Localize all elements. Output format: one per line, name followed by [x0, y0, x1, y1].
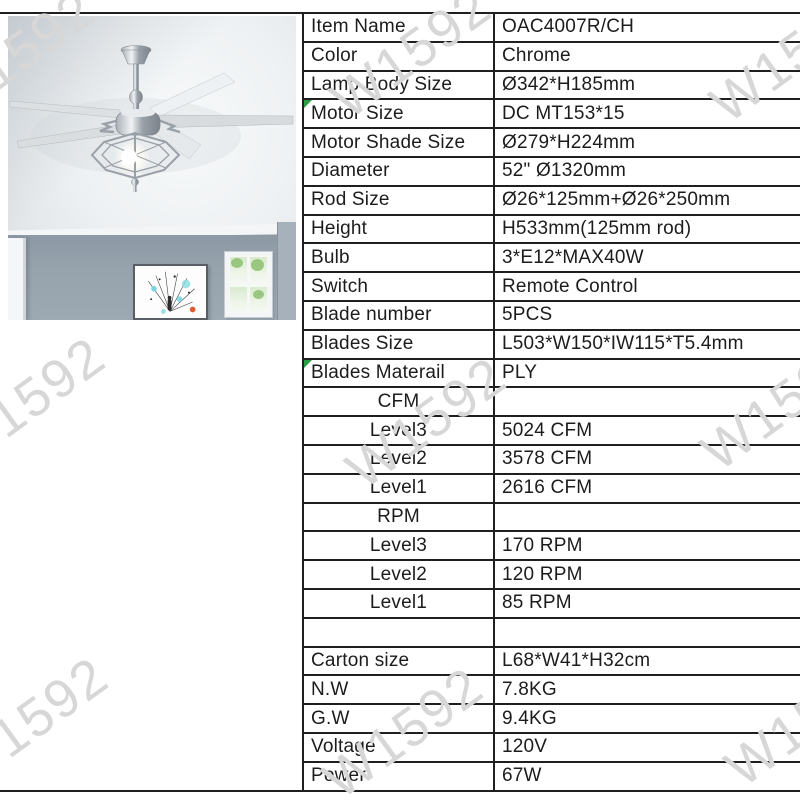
spec-label-text: Motor Size [311, 103, 404, 125]
spec-value: 9.4KG [495, 705, 800, 732]
spec-label: Level2 [302, 561, 495, 588]
table-row: RPM [302, 504, 800, 533]
spec-value: Chrome [495, 43, 800, 70]
spec-label: Rod Size [302, 187, 495, 214]
spec-value: H533mm(125mm rod) [495, 216, 800, 243]
spec-label-text: Blades Materail [311, 362, 445, 384]
table-row: G.W9.4KG [302, 705, 800, 734]
table-row: Level35024 CFM [302, 417, 800, 446]
spec-label: Level1 [302, 475, 495, 502]
table-row: Motor Shade SizeØ279*H224mm [302, 129, 800, 158]
spec-label: Item Name [302, 14, 495, 41]
table-row [302, 619, 800, 648]
spec-label: G.W [302, 705, 495, 732]
spec-value: 5PCS [495, 302, 800, 329]
ceiling-fan-illustration [8, 16, 296, 320]
spec-value: 3578 CFM [495, 446, 800, 473]
spec-label: Bulb [302, 244, 495, 271]
spec-label: Carton size [302, 648, 495, 675]
spec-label: Diameter [302, 158, 495, 185]
cell-note-marker [304, 100, 312, 108]
table-row: Voltage120V [302, 734, 800, 763]
table-row: ColorChrome [302, 43, 800, 72]
table-row: N.W7.8KG [302, 676, 800, 705]
spec-label: Blade number [302, 302, 495, 329]
spec-value: Ø342*H185mm [495, 72, 800, 99]
table-row: Carton sizeL68*W41*H32cm [302, 648, 800, 677]
table-row: Blade number5PCS [302, 302, 800, 331]
table-row: Level2120 RPM [302, 561, 800, 590]
spec-label: Level2 [302, 446, 495, 473]
spec-label: Level3 [302, 417, 495, 444]
product-photo [8, 16, 296, 320]
spec-value: 3*E12*MAX40W [495, 244, 800, 271]
spec-value: L68*W41*H32cm [495, 648, 800, 675]
spec-value: 2616 CFM [495, 475, 800, 502]
table-row: Level3170 RPM [302, 532, 800, 561]
table-row: Motor SizeDC MT153*15 [302, 100, 800, 129]
table-bottom-rule [0, 790, 310, 792]
table-row: Item NameOAC4007R/CH [302, 14, 800, 43]
table-row: Diameter52" Ø1320mm [302, 158, 800, 187]
spec-label: Motor Shade Size [302, 129, 495, 156]
spec-label: Switch [302, 273, 495, 300]
spec-value: OAC4007R/CH [495, 14, 800, 41]
table-row: Lamp Body SizeØ342*H185mm [302, 72, 800, 101]
spec-value: DC MT153*15 [495, 100, 800, 127]
spec-label: Voltage [302, 734, 495, 761]
spec-label: Power [302, 763, 495, 790]
spec-label: CFM [302, 388, 495, 415]
spec-value: 5024 CFM [495, 417, 800, 444]
spec-value: Ø26*125mm+Ø26*250mm [495, 187, 800, 214]
table-row: Power67W [302, 763, 800, 792]
spec-value: 52" Ø1320mm [495, 158, 800, 185]
spec-value: PLY [495, 360, 800, 387]
spec-label: Blades Size [302, 331, 495, 358]
spec-value: L503*W150*IW115*T5.4mm [495, 331, 800, 358]
spec-label: N.W [302, 676, 495, 703]
spec-value [495, 504, 800, 531]
spec-label: Level1 [302, 590, 495, 617]
spec-value: 85 RPM [495, 590, 800, 617]
watermark: W1592 [0, 645, 120, 802]
spec-value: 120V [495, 734, 800, 761]
spec-value [495, 619, 800, 646]
watermark: W1592 [0, 325, 117, 482]
spec-value: 170 RPM [495, 532, 800, 559]
cell-note-marker [304, 360, 312, 368]
table-row: Bulb3*E12*MAX40W [302, 244, 800, 273]
spec-value: 67W [495, 763, 800, 790]
spec-label: Height [302, 216, 495, 243]
spec-label: RPM [302, 504, 495, 531]
table-row: Level185 RPM [302, 590, 800, 619]
spec-label: Color [302, 43, 495, 70]
table-row: SwitchRemote Control [302, 273, 800, 302]
spec-value: Ø279*H224mm [495, 129, 800, 156]
table-row: Level12616 CFM [302, 475, 800, 504]
spec-value: Remote Control [495, 273, 800, 300]
table-row: Rod SizeØ26*125mm+Ø26*250mm [302, 187, 800, 216]
spec-label: Motor Size [302, 100, 495, 127]
table-row: CFM [302, 388, 800, 417]
table-row: Blades MaterailPLY [302, 360, 800, 389]
table-row: Level23578 CFM [302, 446, 800, 475]
table-row: Blades SizeL503*W150*IW115*T5.4mm [302, 331, 800, 360]
spec-table: Item NameOAC4007R/CH ColorChrome Lamp Bo… [302, 12, 800, 792]
spec-label: Blades Materail [302, 360, 495, 387]
page: Item NameOAC4007R/CH ColorChrome Lamp Bo… [0, 0, 800, 800]
table-row: HeightH533mm(125mm rod) [302, 216, 800, 245]
spec-label: Level3 [302, 532, 495, 559]
spec-label: Lamp Body Size [302, 72, 495, 99]
spec-value: 120 RPM [495, 561, 800, 588]
spec-value [495, 388, 800, 415]
spec-label [302, 619, 495, 646]
spec-value: 7.8KG [495, 676, 800, 703]
